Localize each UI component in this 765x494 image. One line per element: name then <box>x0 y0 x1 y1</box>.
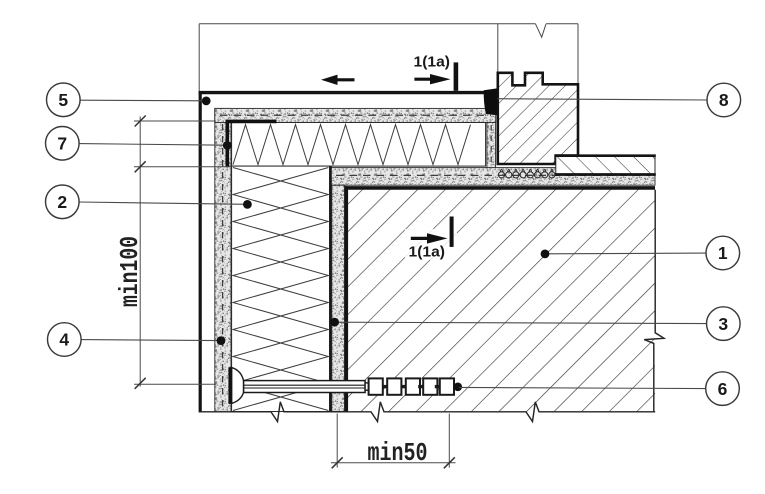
svg-text:min50: min50 <box>368 438 428 468</box>
svg-text:min100: min100 <box>115 236 145 307</box>
svg-text:2: 2 <box>57 192 67 212</box>
svg-text:6: 6 <box>718 379 728 399</box>
svg-text:3: 3 <box>718 314 728 334</box>
svg-text:8: 8 <box>719 90 729 110</box>
svg-text:7: 7 <box>57 134 67 154</box>
svg-text:1: 1 <box>718 243 728 263</box>
svg-text:4: 4 <box>59 330 69 350</box>
svg-text:1(1a): 1(1a) <box>409 244 446 261</box>
svg-text:1(1a): 1(1a) <box>414 53 451 70</box>
svg-text:5: 5 <box>58 90 68 110</box>
